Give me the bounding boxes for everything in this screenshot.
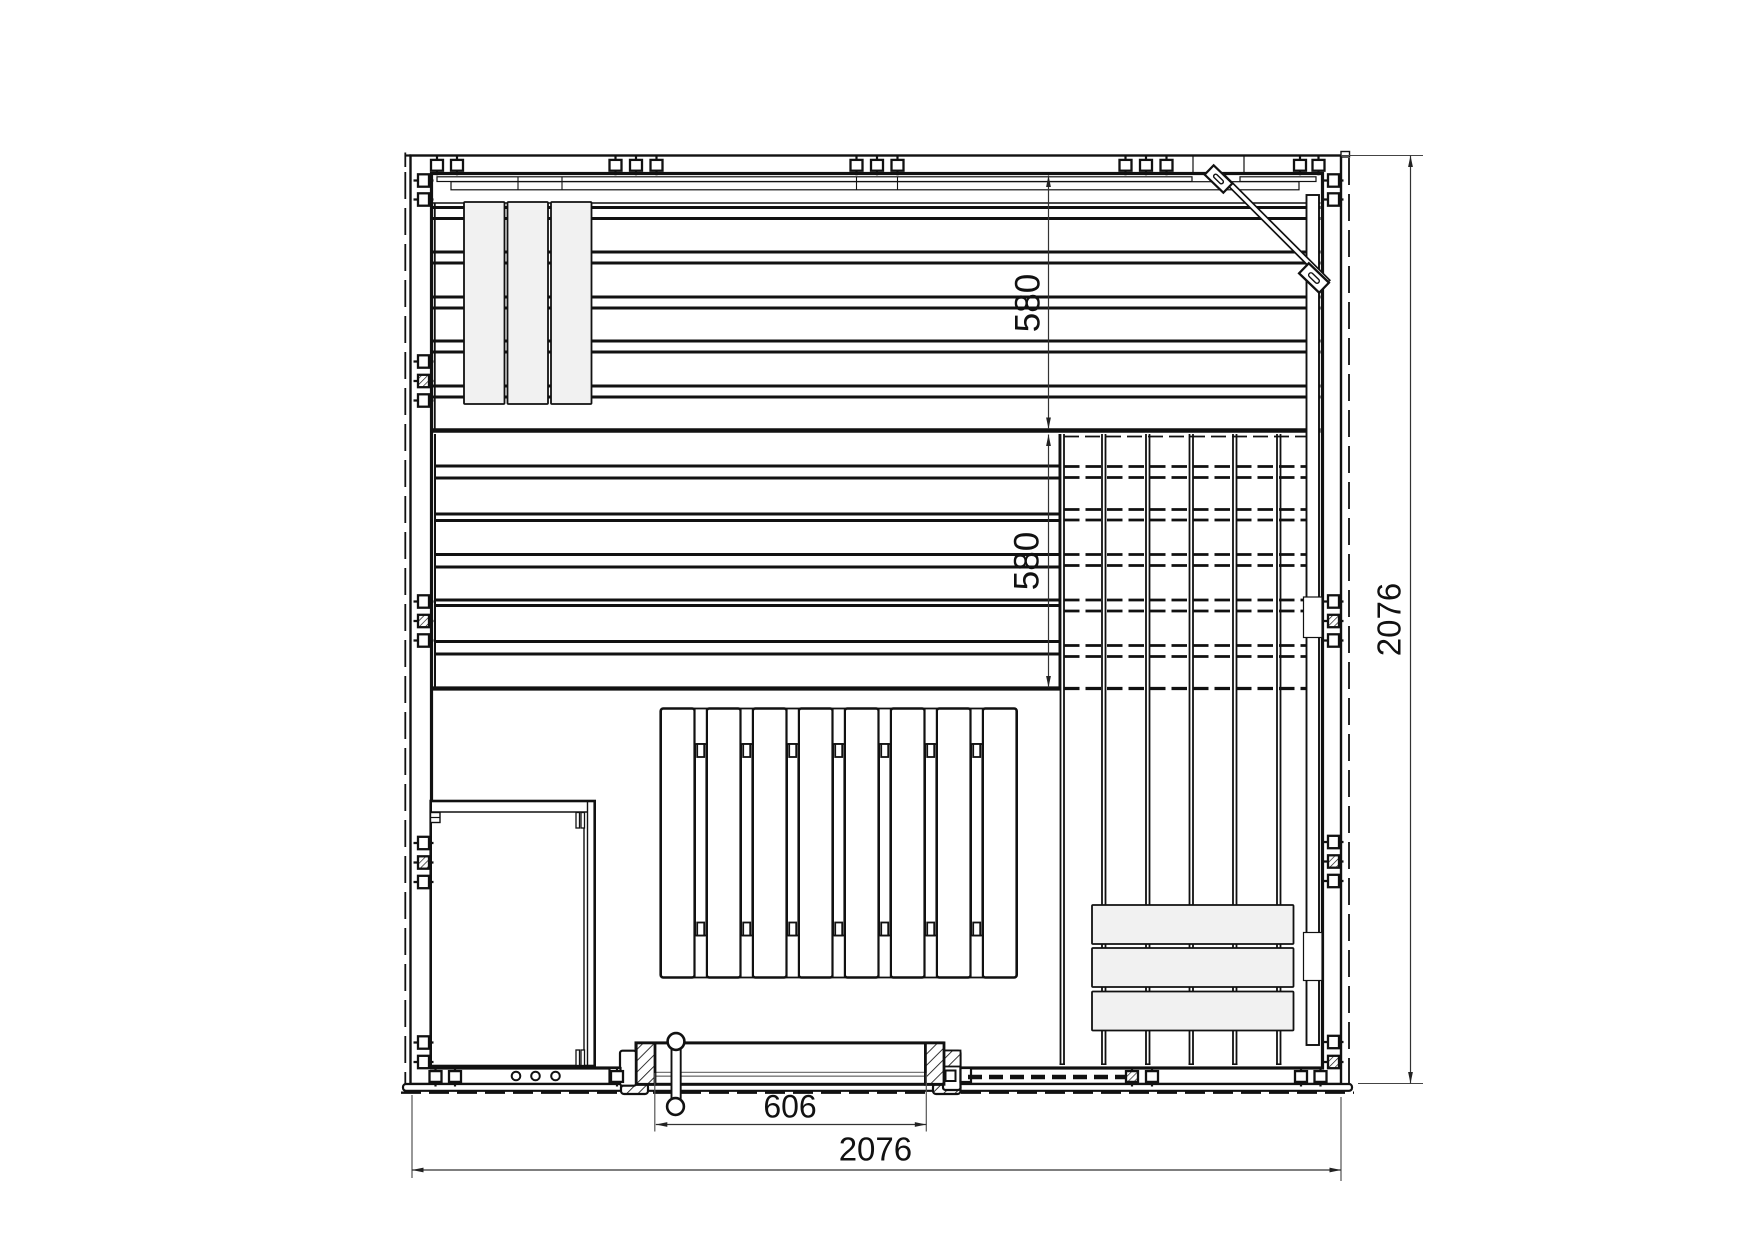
svg-text:580: 580: [1009, 274, 1048, 332]
svg-text:2076: 2076: [839, 1131, 912, 1168]
svg-text:580: 580: [1008, 532, 1047, 590]
svg-text:2076: 2076: [1371, 583, 1408, 656]
svg-text:606: 606: [763, 1089, 816, 1125]
